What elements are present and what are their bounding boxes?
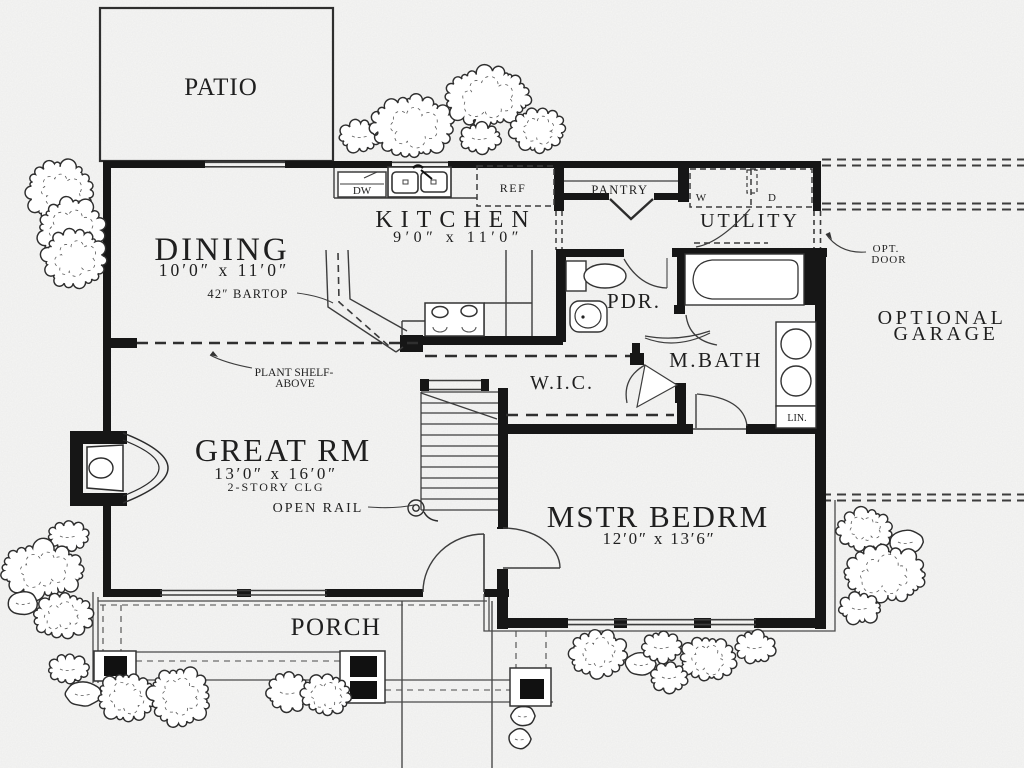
- svg-text:9′0″ x 11′0″: 9′0″ x 11′0″: [393, 229, 523, 246]
- svg-text:UTILITY: UTILITY: [700, 210, 800, 232]
- svg-text:10′0″ x 11′0″: 10′0″ x 11′0″: [159, 260, 290, 280]
- svg-text:GARAGE: GARAGE: [894, 323, 999, 345]
- svg-text:REF: REF: [500, 181, 527, 195]
- svg-text:PDR.: PDR.: [607, 289, 661, 313]
- svg-text:W.I.C.: W.I.C.: [530, 372, 594, 394]
- svg-text:12′0″ x 13′6″: 12′0″ x 13′6″: [603, 529, 716, 548]
- svg-text:PORCH: PORCH: [291, 614, 382, 641]
- svg-text:D: D: [768, 192, 776, 204]
- svg-text:42″ BARTOP: 42″ BARTOP: [207, 287, 288, 301]
- svg-text:OPEN RAIL: OPEN RAIL: [273, 501, 364, 516]
- svg-text:PATIO: PATIO: [184, 74, 258, 101]
- svg-text:DW: DW: [353, 185, 372, 197]
- svg-text:W: W: [696, 192, 707, 204]
- svg-text:2-STORY CLG: 2-STORY CLG: [227, 480, 324, 494]
- svg-text:PANTRY: PANTRY: [591, 183, 648, 197]
- svg-text:LIN.: LIN.: [787, 413, 806, 424]
- svg-text:GREAT RM: GREAT RM: [195, 432, 371, 468]
- svg-text:DOOR: DOOR: [871, 254, 906, 266]
- svg-text:ABOVE: ABOVE: [275, 378, 315, 390]
- svg-text:M.BATH: M.BATH: [669, 348, 763, 372]
